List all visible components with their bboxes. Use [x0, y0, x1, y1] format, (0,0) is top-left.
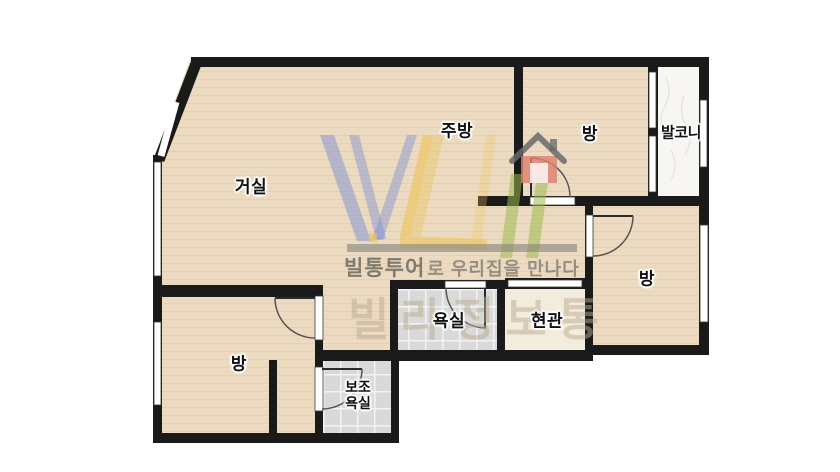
room-label-balcony: 발코니 [661, 122, 701, 143]
watermark-brand-text: 빌통투어 [344, 252, 425, 282]
room-label-room-left: 방 [231, 350, 247, 375]
wall-top [191, 57, 709, 67]
wall-bottom-mid [315, 350, 593, 361]
room-label-room-top: 방 [582, 120, 598, 145]
watermark-slogan-text: 로 우리집을 만나다 [427, 255, 579, 281]
threshold-room-right [586, 215, 593, 257]
aux-bathroom-label-line1: 보조 [345, 379, 371, 395]
room-label-bathroom: 욕실 [433, 307, 465, 332]
wall-aux-right [391, 350, 399, 443]
threshold-aux-bathroom [315, 367, 323, 411]
room-label-living: 거실 [235, 173, 267, 198]
watermark-big-text: 빌라정보통 [348, 283, 610, 348]
wall-stub [269, 360, 277, 443]
window-balcony-door-1 [649, 72, 656, 128]
logo-underline-bar [347, 244, 577, 252]
wall-living-bedroom [153, 285, 323, 297]
window-balcony-right [700, 100, 707, 167]
aux-bathroom-label-line2: 욕실 [345, 395, 371, 411]
room-label-entrance: 현관 [531, 307, 563, 332]
room-label-room-right: 방 [639, 265, 655, 290]
floor-plan-drawing [0, 0, 840, 472]
room-label-aux-bathroom: 보조 욕실 [345, 379, 371, 411]
window-living-left [154, 162, 161, 276]
threshold-bedroom [315, 296, 323, 340]
watermark-tagline: 빌통투어 로 우리집을 만나다 [344, 252, 580, 282]
room-label-kitchen: 주방 [441, 117, 473, 142]
window-room-right [700, 225, 708, 322]
window-balcony-door-2 [649, 136, 656, 192]
floor-plan: 빌통투어 로 우리집을 만나다 빌라정보통 거실 주방 방 발코니 방 욕실 현… [0, 0, 840, 472]
window-bedroom-left [154, 322, 161, 405]
